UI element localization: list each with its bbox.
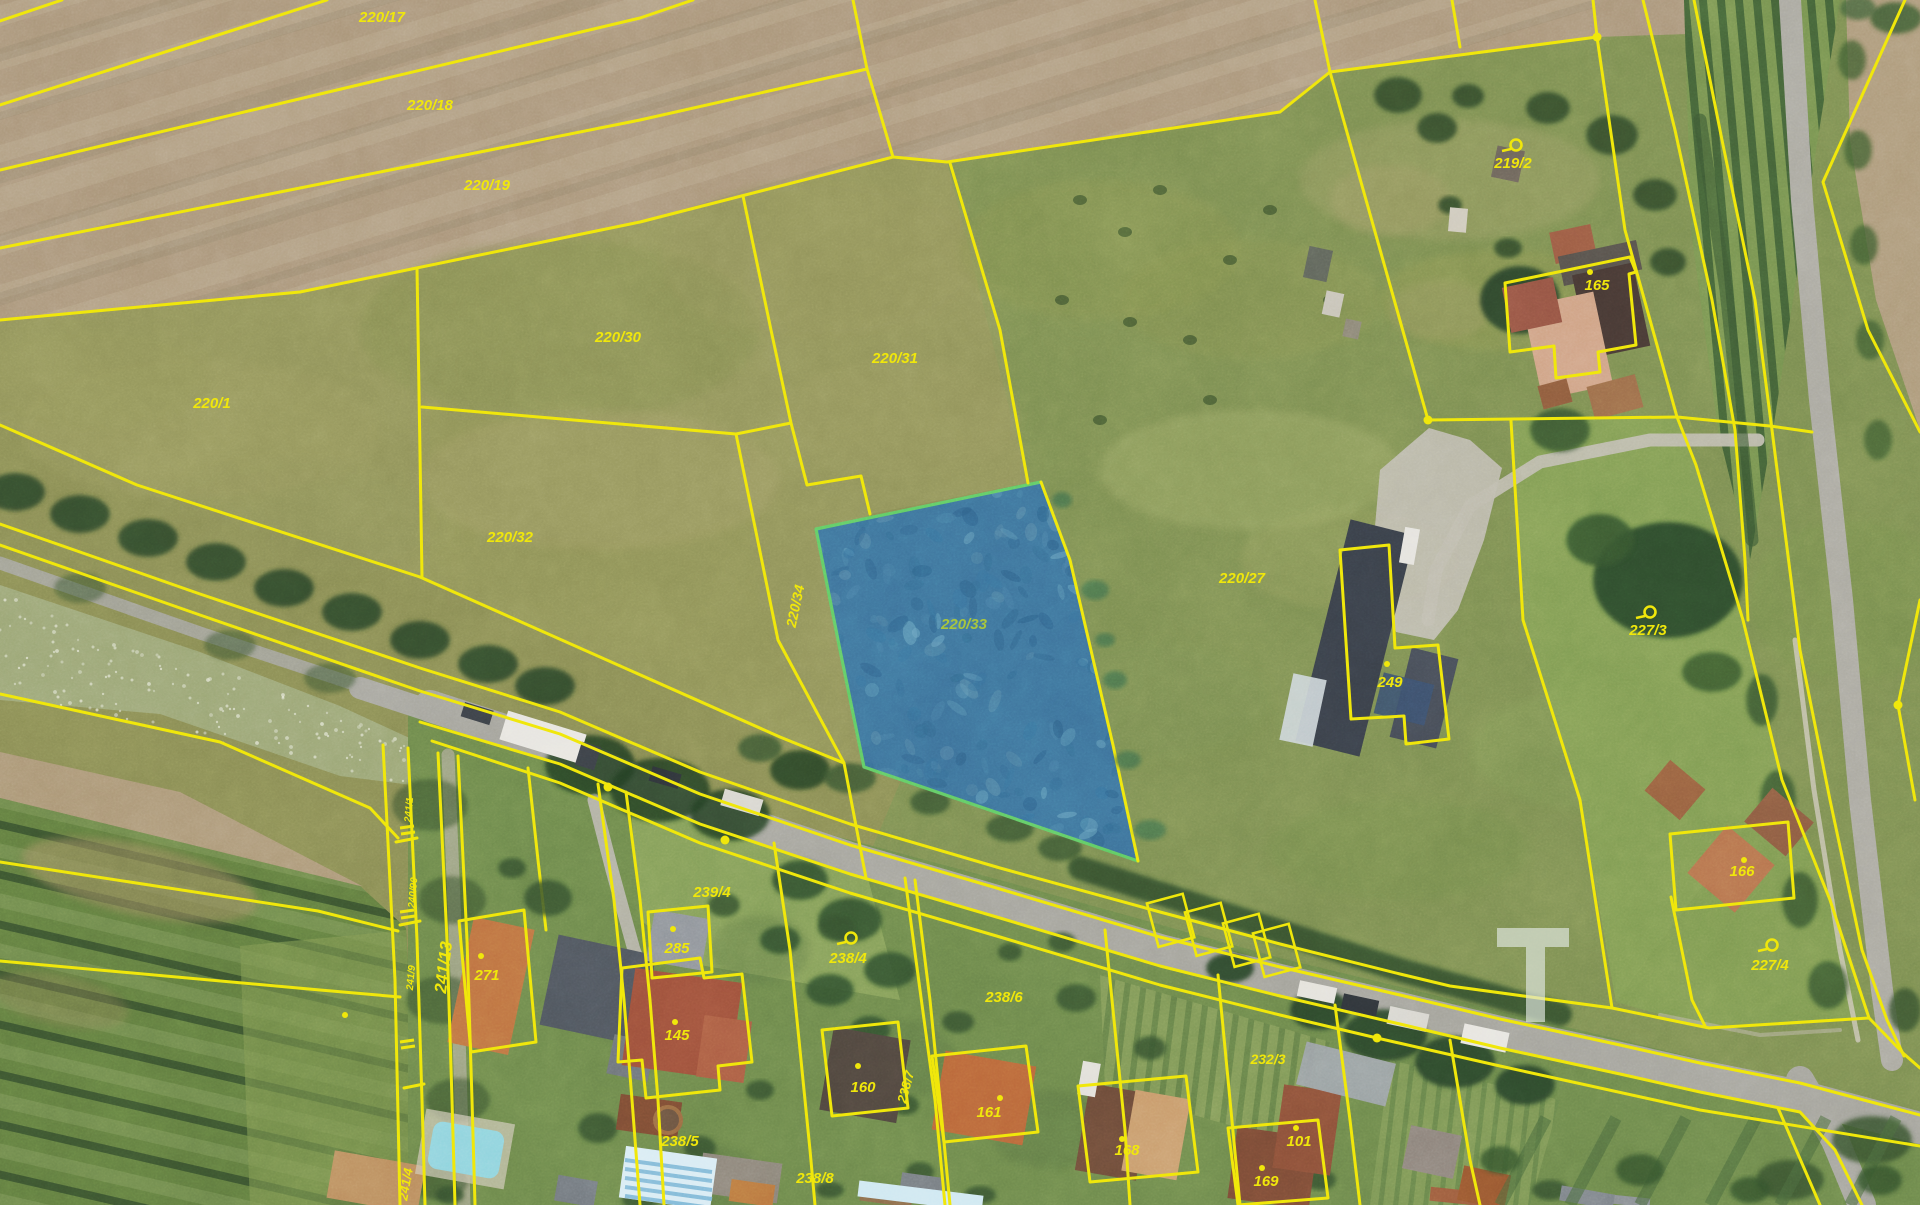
svg-text:165: 165 [1584,277,1610,294]
svg-text:160: 160 [850,1079,876,1096]
svg-text:220/31: 220/31 [871,350,918,367]
svg-text:220/33: 220/33 [940,616,988,633]
svg-text:220/19: 220/19 [463,177,511,194]
svg-text:227/4: 227/4 [1750,957,1789,974]
svg-text:238/6: 238/6 [984,989,1023,1006]
svg-text:219/2: 219/2 [1493,155,1532,172]
svg-text:285: 285 [663,940,690,957]
svg-text:220/18: 220/18 [406,97,454,114]
svg-text:168: 168 [1114,1142,1140,1159]
svg-text:241/1: 241/1 [403,796,416,823]
svg-text:220/32: 220/32 [486,529,534,546]
svg-text:169: 169 [1253,1173,1279,1190]
svg-text:166: 166 [1729,863,1755,880]
svg-text:220/30: 220/30 [594,329,642,346]
svg-text:239/4: 239/4 [692,884,731,901]
svg-text:232/3: 232/3 [1249,1051,1285,1067]
svg-text:101: 101 [1286,1133,1311,1150]
svg-text:220/27: 220/27 [1218,570,1266,587]
svg-text:220/1: 220/1 [192,395,231,412]
svg-text:145: 145 [664,1027,690,1044]
svg-text:249: 249 [1376,674,1403,691]
svg-text:238/5: 238/5 [660,1133,699,1150]
svg-text:220/17: 220/17 [358,9,406,26]
svg-text:161: 161 [976,1104,1001,1121]
svg-text:238/8: 238/8 [795,1170,834,1187]
svg-text:271: 271 [473,967,499,984]
svg-text:241/9: 241/9 [405,964,418,991]
svg-text:227/3: 227/3 [1628,622,1667,639]
svg-text:238/4: 238/4 [828,950,867,967]
